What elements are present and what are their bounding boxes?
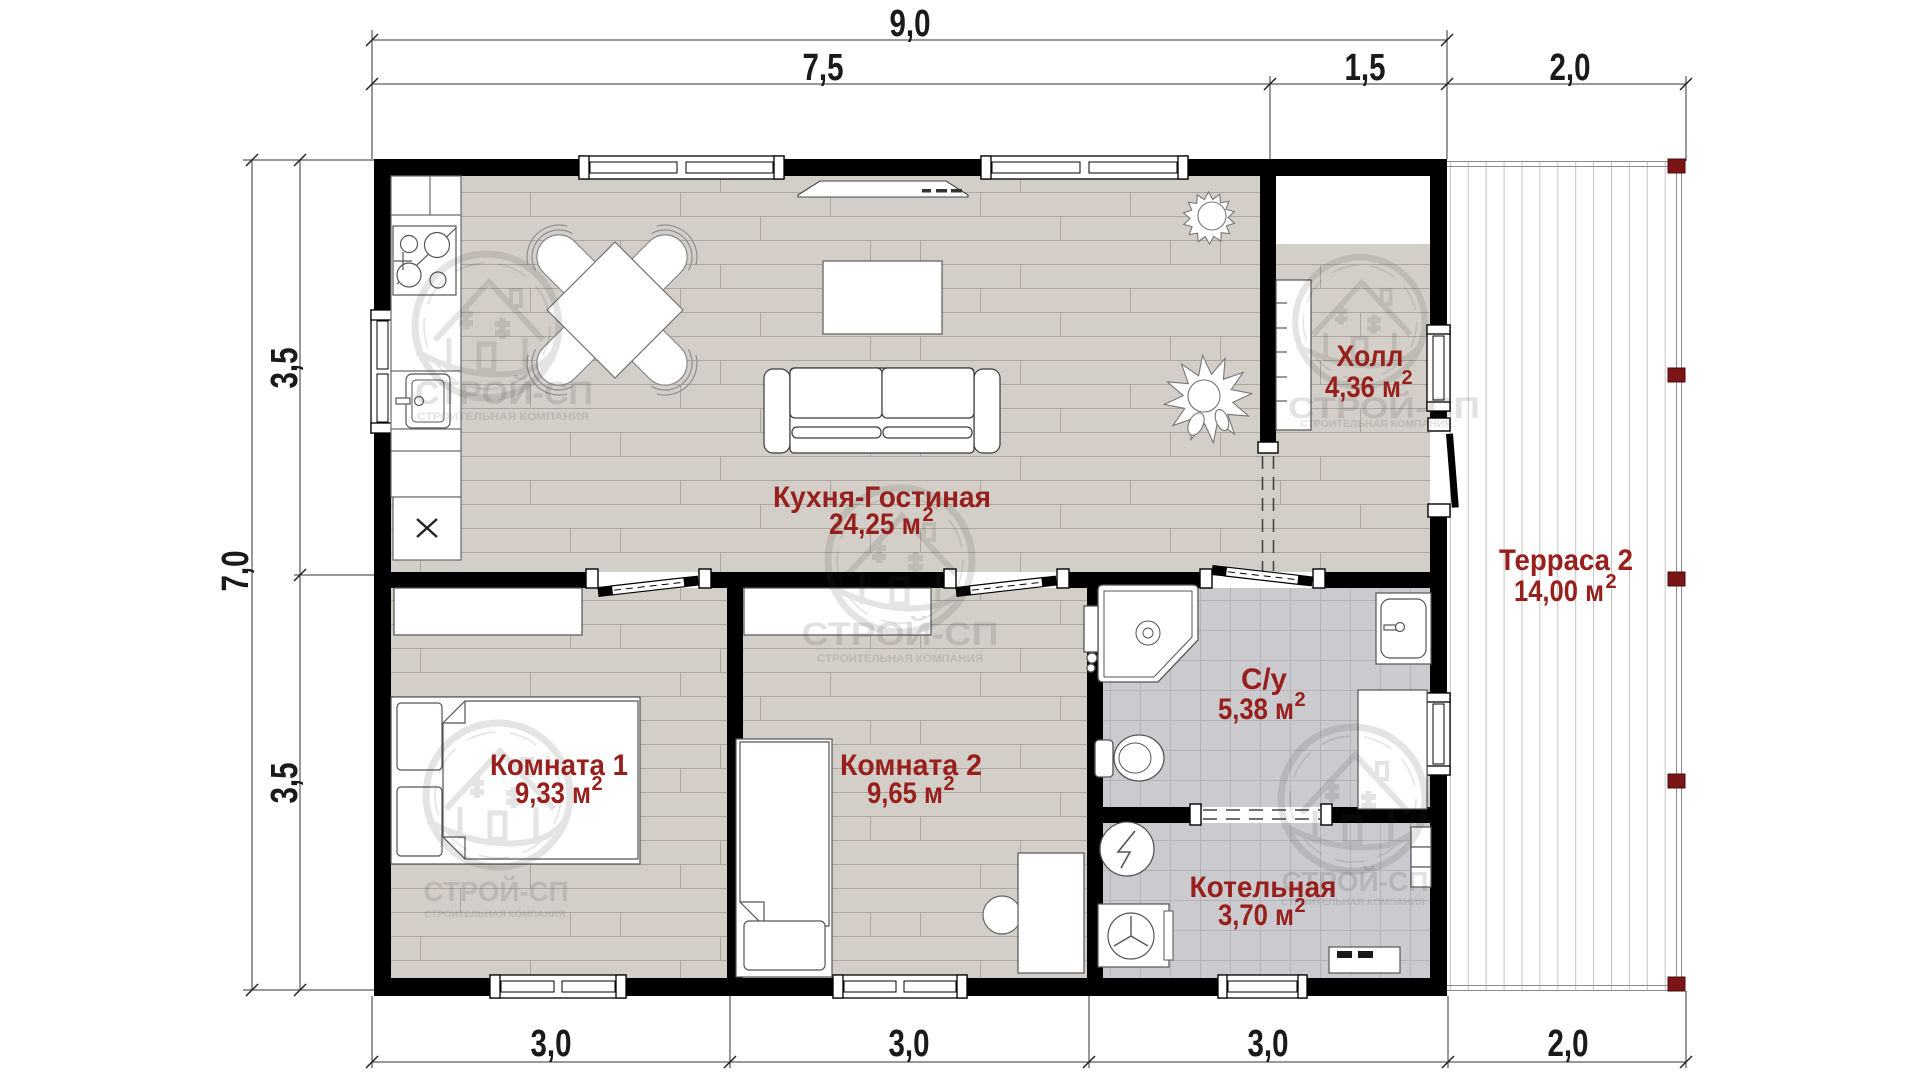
svg-text:2,0: 2,0 [1548,1023,1589,1065]
svg-text:С/у: С/у [1241,663,1287,696]
svg-text:3,70 м: 3,70 м [1218,899,1294,932]
svg-text:9,65 м: 9,65 м [867,777,943,810]
svg-text:СТРОИТЕЛЬНАЯ КОМПАНИЯ: СТРОИТЕЛЬНАЯ КОМПАНИЯ [1300,418,1452,430]
svg-text:СТРОИТЕЛЬНАЯ КОМПАНИЯ: СТРОИТЕЛЬНАЯ КОМПАНИЯ [417,411,589,423]
svg-text:14,00 м: 14,00 м [1514,575,1604,608]
svg-text:3,5: 3,5 [264,348,306,389]
svg-text:2: 2 [1605,571,1616,593]
svg-text:24,25 м: 24,25 м [829,508,921,541]
svg-text:Холл: Холл [1337,340,1404,373]
svg-text:9,0: 9,0 [890,3,931,45]
svg-text:9,33 м: 9,33 м [515,777,591,810]
svg-text:СТРОЙ-СП: СТРОЙ-СП [415,375,593,411]
svg-text:5,38 м: 5,38 м [1218,693,1294,726]
svg-text:2: 2 [1294,895,1305,917]
svg-text:3,0: 3,0 [531,1023,572,1065]
svg-text:СТРОИТЕЛЬНАЯ КОМПАНИЯ: СТРОИТЕЛЬНАЯ КОМПАНИЯ [817,653,983,665]
svg-text:3,0: 3,0 [1248,1023,1289,1065]
svg-text:2: 2 [1294,689,1305,711]
svg-text:СТРОЙ-СП: СТРОЙ-СП [424,875,569,907]
svg-text:3,0: 3,0 [889,1023,930,1065]
svg-text:2,0: 2,0 [1550,47,1591,89]
svg-text:СТРОИТЕЛЬНАЯ КОМПАНИЯ: СТРОИТЕЛЬНАЯ КОМПАНИЯ [425,909,566,920]
svg-text:7,5: 7,5 [803,47,844,89]
svg-text:1,5: 1,5 [1345,47,1386,89]
svg-text:СТРОЙ-СП: СТРОЙ-СП [802,616,999,652]
svg-text:2: 2 [922,504,933,526]
svg-text:2: 2 [943,773,954,795]
svg-text:2: 2 [1401,367,1412,389]
svg-text:3,5: 3,5 [264,763,306,804]
svg-text:4,36 м: 4,36 м [1325,371,1401,404]
svg-text:7,0: 7,0 [215,551,257,592]
svg-text:2: 2 [591,773,602,795]
